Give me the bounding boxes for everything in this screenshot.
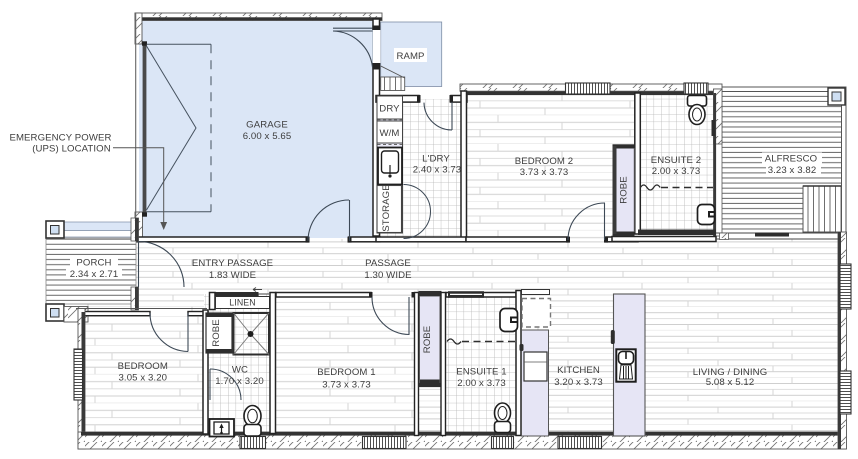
svg-text:ROBE: ROBE — [211, 319, 222, 347]
svg-text:ROBE: ROBE — [619, 176, 630, 204]
svg-text:BEDROOM 1: BEDROOM 1 — [317, 367, 375, 378]
svg-text:ENTRY PASSAGE: ENTRY PASSAGE — [192, 258, 273, 269]
svg-text:1.83 WIDE: 1.83 WIDE — [209, 270, 256, 281]
svg-text:PASSAGE: PASSAGE — [365, 258, 411, 269]
svg-text:3.23 x 3.82: 3.23 x 3.82 — [768, 165, 817, 176]
svg-text:EMERGENCY POWER: EMERGENCY POWER — [9, 133, 111, 144]
svg-text:ROBE: ROBE — [422, 326, 433, 354]
svg-text:DRY: DRY — [379, 104, 400, 115]
svg-text:2.34 x 2.71: 2.34 x 2.71 — [70, 269, 119, 280]
svg-text:STORAGE: STORAGE — [381, 184, 392, 231]
svg-text:2.40 x 3.73: 2.40 x 3.73 — [413, 165, 462, 176]
svg-text:L'DRY: L'DRY — [422, 154, 450, 165]
svg-text:LINEN: LINEN — [229, 298, 255, 308]
svg-text:(UPS) LOCATION: (UPS) LOCATION — [32, 144, 111, 155]
svg-text:KITCHEN: KITCHEN — [557, 365, 600, 376]
svg-text:5.08 x 5.12: 5.08 x 5.12 — [706, 377, 755, 388]
svg-text:6.00 x 5.65: 6.00 x 5.65 — [243, 131, 292, 142]
svg-text:WC: WC — [232, 365, 248, 376]
svg-text:3.20 x 3.73: 3.20 x 3.73 — [554, 377, 603, 388]
svg-text:BEDROOM: BEDROOM — [118, 361, 168, 372]
svg-text:1.30 WIDE: 1.30 WIDE — [364, 270, 411, 281]
svg-text:ALFRESCO: ALFRESCO — [765, 154, 818, 165]
svg-text:3.73 x 3.73: 3.73 x 3.73 — [520, 167, 569, 178]
svg-text:RAMP: RAMP — [396, 51, 424, 62]
svg-text:GARAGE: GARAGE — [246, 120, 288, 131]
svg-text:3.73 x 3.73: 3.73 x 3.73 — [322, 380, 371, 391]
svg-text:BEDROOM 2: BEDROOM 2 — [515, 156, 573, 167]
svg-text:2.00 x 3.73: 2.00 x 3.73 — [652, 166, 701, 177]
svg-text:1.70 x 3.20: 1.70 x 3.20 — [215, 376, 264, 387]
svg-text:ENSUITE 2: ENSUITE 2 — [651, 155, 701, 166]
svg-text:2.00 x 3.73: 2.00 x 3.73 — [457, 378, 506, 389]
svg-text:W/M: W/M — [379, 128, 399, 139]
svg-text:PORCH: PORCH — [76, 258, 111, 269]
svg-text:3.05 x 3.20: 3.05 x 3.20 — [119, 373, 168, 384]
svg-text:ENSUITE 1: ENSUITE 1 — [456, 367, 506, 378]
